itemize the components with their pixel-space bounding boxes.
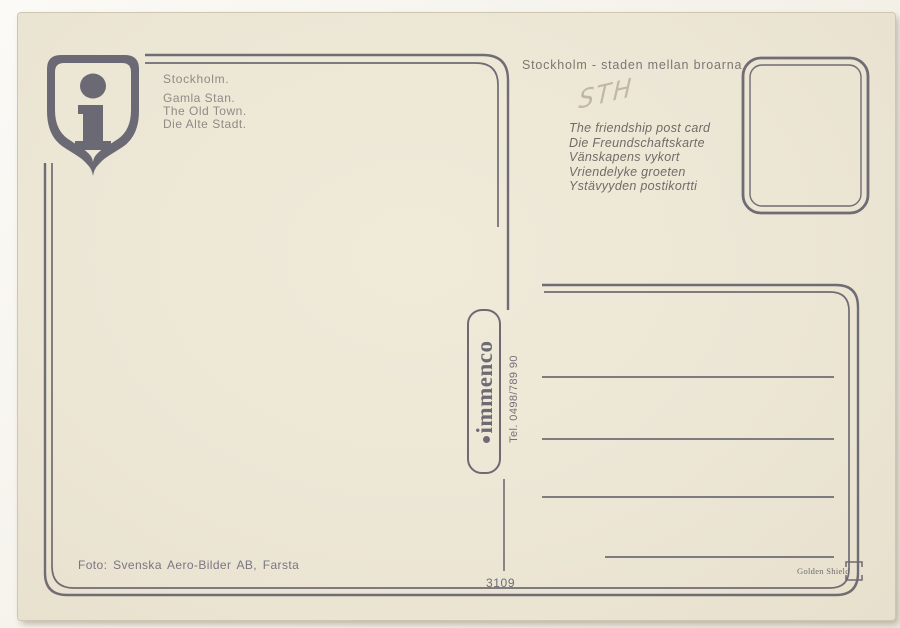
card-border-outer — [45, 163, 858, 595]
greeting-line-nl: Vriendelyke groeten — [569, 165, 710, 180]
greeting-line-fi: Ystävyyden postikortti — [569, 179, 710, 194]
info-shield-icon — [45, 53, 141, 179]
postcard-back: Stockholm. Gamla Stan. The Old Town. Die… — [18, 13, 895, 620]
greeting-line-de: Die Freundschaftskarte — [569, 136, 710, 151]
greeting-block: The friendship post card Die Freundschaf… — [569, 121, 710, 194]
publisher-phone: Tel. 0498/789 90 — [507, 344, 522, 454]
printed-linework — [18, 13, 895, 620]
place-line-en: The Old Town. — [163, 105, 247, 118]
greeting-line-en: The friendship post card — [569, 121, 710, 136]
golden-shield-label: Golden Shield — [797, 566, 869, 576]
place-line-sv: Gamla Stan. — [163, 92, 247, 105]
message-frame-inner — [145, 63, 498, 227]
stamp-box-inner — [750, 65, 861, 206]
card-place-lines: Gamla Stan. The Old Town. Die Alte Stadt… — [163, 92, 247, 130]
place-line-de: Die Alte Stadt. — [163, 118, 247, 131]
immenco-logo-dot — [483, 436, 490, 443]
immenco-logo: immenco — [470, 312, 499, 472]
card-city-title: Stockholm. — [163, 72, 229, 86]
card-number: 3109 — [486, 576, 515, 590]
golden-shield-mark: Golden Shield — [793, 557, 873, 587]
immenco-logo-text: immenco — [472, 341, 497, 434]
photo-credit: Foto: Svenska Aero-Bilder AB, Farsta — [78, 558, 299, 572]
greeting-line-sv: Vänskapens vykort — [569, 150, 710, 165]
card-border-inner — [52, 163, 849, 588]
card-main-title: Stockholm - staden mellan broarna — [522, 58, 742, 72]
stamp-box-outer — [743, 58, 868, 213]
